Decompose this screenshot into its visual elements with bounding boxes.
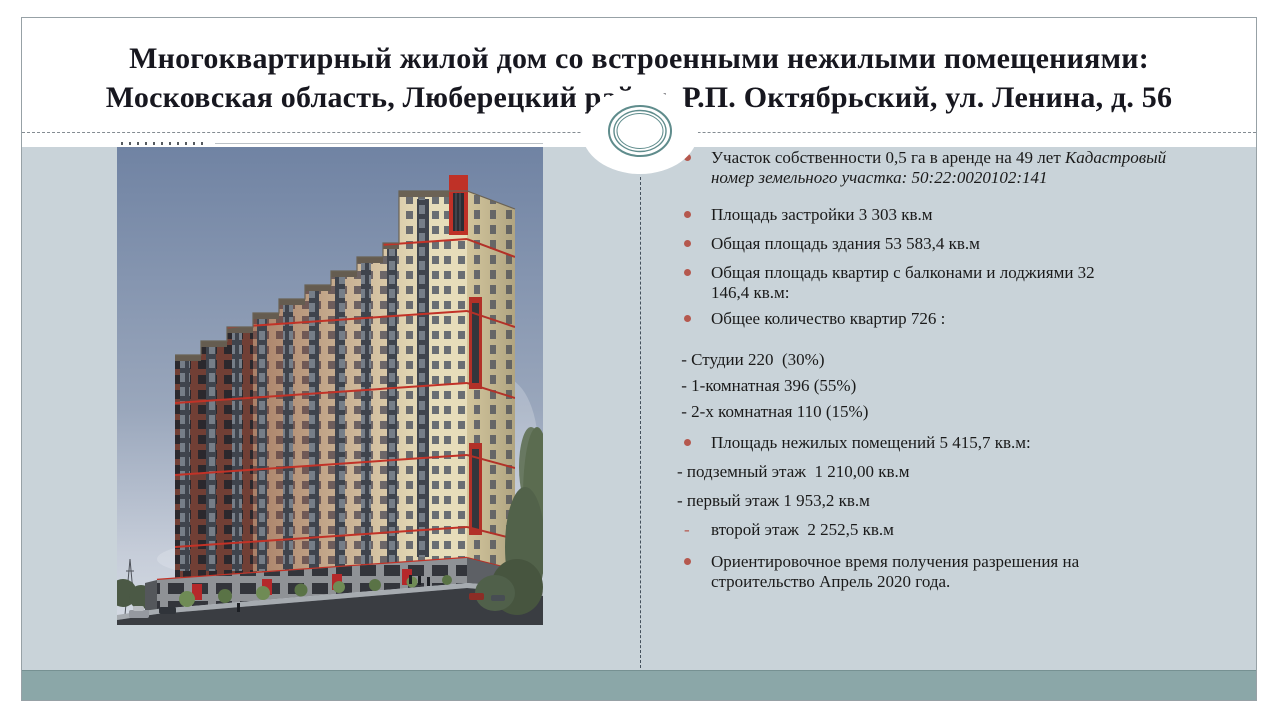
fact-item: - Студии 220 (30%) <box>677 350 1262 370</box>
picture-top-solid-line <box>215 143 543 144</box>
fact-item: - второй этаж 2 252,5 кв.м <box>677 520 1262 540</box>
fact-item: - 2-х комнатная 110 (15%) <box>677 402 1262 422</box>
title-line-1: Многоквартирный жилой дом со встроенными… <box>129 42 1149 75</box>
fact-text: Участок собственности 0,5 га в аренде на… <box>711 148 1166 187</box>
building-rendering <box>117 147 543 625</box>
bullet-dot-icon <box>684 211 691 218</box>
fact-text: - 2-х комнатная 110 (15%) <box>677 402 868 421</box>
fact-text: второй этаж 2 252,5 кв.м <box>711 520 894 539</box>
fact-text: Площадь нежилых помещений 5 415,7 кв.м: <box>711 433 1031 452</box>
bullet-dot-icon <box>684 269 691 276</box>
fact-item: - подземный этаж 1 210,00 кв.м <box>677 462 1262 482</box>
column-divider-line <box>640 177 641 668</box>
fact-item: - первый этаж 1 953,2 кв.м <box>677 491 1262 511</box>
fact-text: Общая площадь квартир с балконами и лодж… <box>711 263 1095 302</box>
fact-text: Площадь застройки 3 303 кв.м <box>711 205 933 224</box>
fact-item: Участок собственности 0,5 га в аренде на… <box>677 148 1262 188</box>
fact-item: Площадь нежилых помещений 5 415,7 кв.м: <box>677 433 1262 453</box>
fact-item: Площадь застройки 3 303 кв.м <box>677 205 1262 225</box>
fact-text: - подземный этаж 1 210,00 кв.м <box>677 462 910 481</box>
fact-text: - первый этаж 1 953,2 кв.м <box>677 491 870 510</box>
oval-ornament-icon <box>607 104 673 158</box>
fact-item: - 1-комнатная 396 (55%) <box>677 376 1262 396</box>
building-rendering-svg <box>117 147 543 625</box>
facts-list: Участок собственности 0,5 га в аренде на… <box>677 148 1262 601</box>
bottom-accent-band <box>22 670 1256 700</box>
fact-text: - Студии 220 (30%) <box>677 350 825 369</box>
bullet-dot-icon <box>684 315 691 322</box>
bullet-dot-icon <box>684 240 691 247</box>
fact-item: Ориентировочное время получения разрешен… <box>677 552 1262 592</box>
fact-text: Общая площадь здания 53 583,4 кв.м <box>711 234 980 253</box>
fact-item: Общая площадь здания 53 583,4 кв.м <box>677 234 1262 254</box>
fact-item: Общее количество квартир 726 : <box>677 309 1262 329</box>
fact-text: Общее количество квартир 726 : <box>711 309 945 328</box>
fact-text: - 1-комнатная 396 (55%) <box>677 376 856 395</box>
fact-item: Общая площадь квартир с балконами и лодж… <box>677 263 1262 303</box>
bullet-dot-icon <box>684 439 691 446</box>
picture-top-dotted-line <box>121 142 206 145</box>
bullet-dot-icon <box>684 558 691 565</box>
fact-text: Ориентировочное время получения разрешен… <box>711 552 1079 591</box>
oval-ornament <box>607 104 673 158</box>
bullet-dash-icon: - <box>684 520 690 540</box>
